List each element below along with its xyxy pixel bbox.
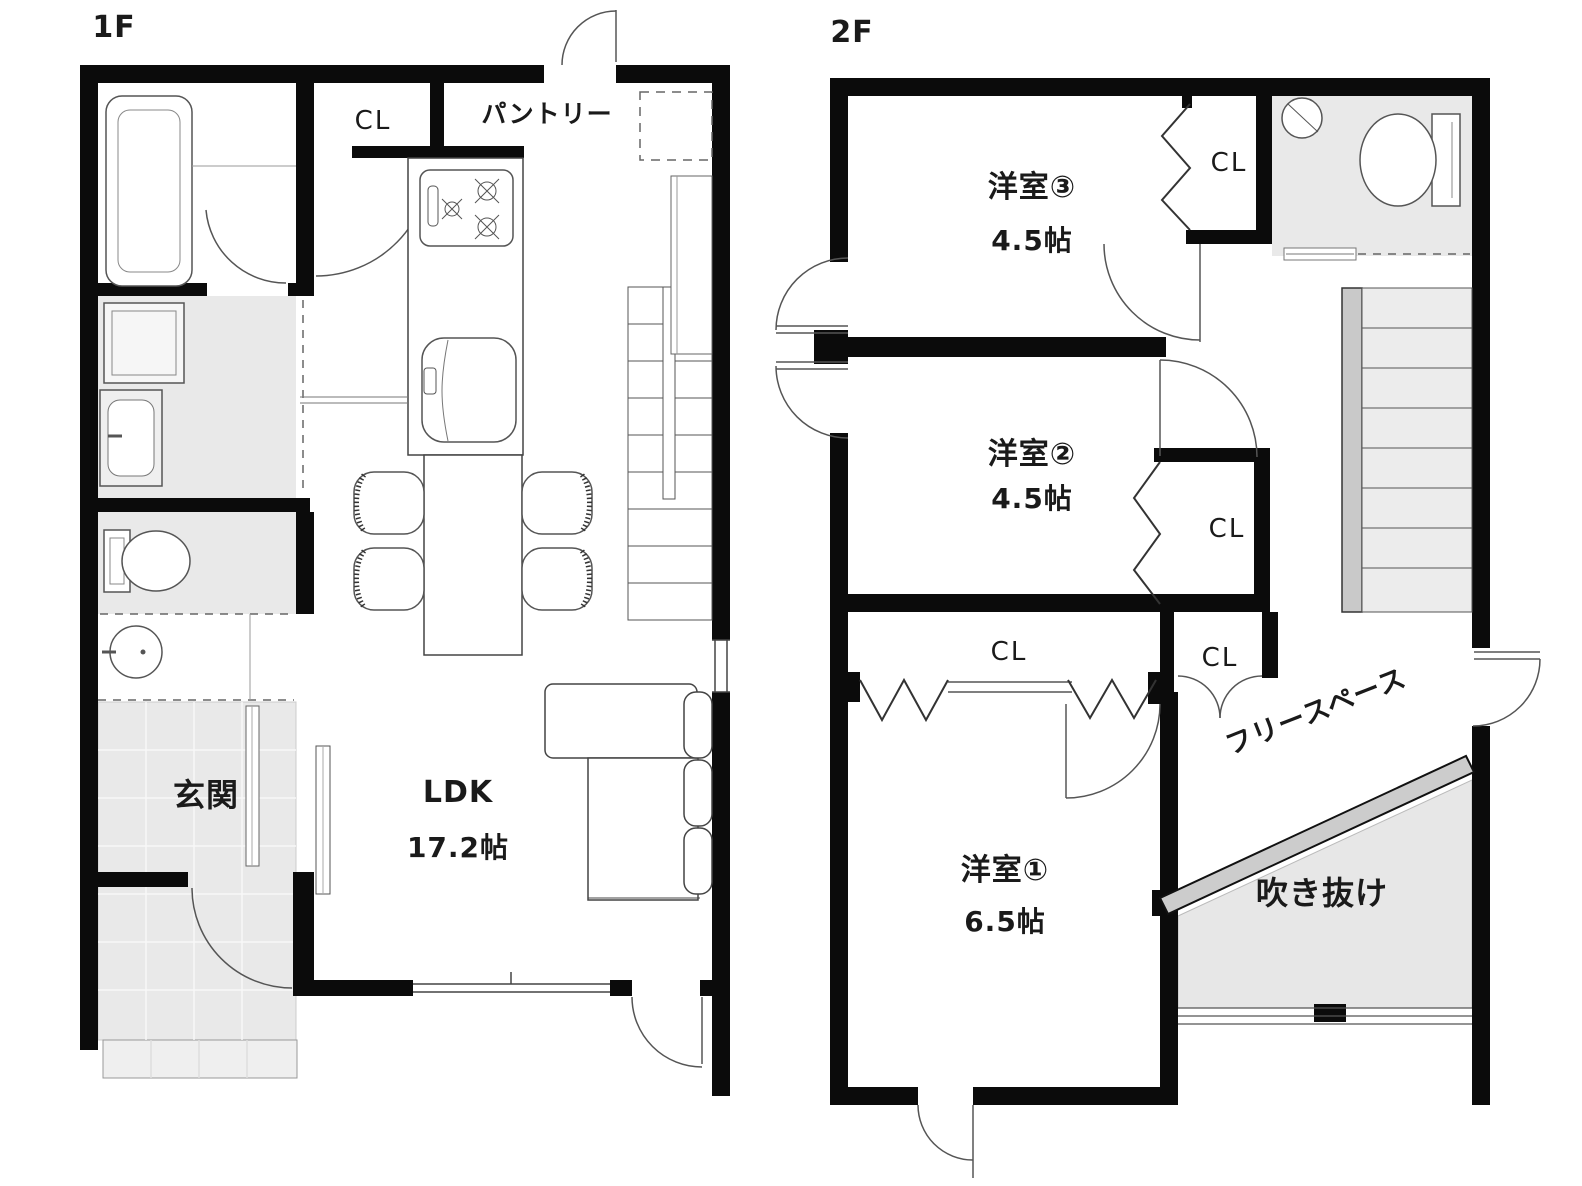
- counter-lines: [300, 397, 408, 403]
- floorplan-drawing: [0, 0, 1582, 1186]
- floor2-plan: [776, 78, 1540, 1178]
- shoe-cabinet: [246, 706, 259, 866]
- chair: [522, 548, 592, 610]
- sofa: [545, 684, 712, 900]
- tv-board: [316, 746, 330, 894]
- dining-table: [424, 455, 522, 655]
- entrance-label: 玄関: [173, 779, 239, 811]
- pantry-shelf: [671, 176, 712, 354]
- chair: [354, 472, 424, 534]
- hall-closet-label: CL: [991, 639, 1028, 665]
- hall-closet2-doors: [1178, 676, 1262, 718]
- chair: [354, 548, 424, 610]
- round-basin: [102, 614, 250, 700]
- floorplan-canvas: 1F CL パントリー 玄関 LDK 17.2帖 2F 洋室③ 4.5帖 CL …: [0, 0, 1582, 1186]
- floor1-plan: [80, 10, 730, 1096]
- room3-label: 洋室③: [988, 173, 1076, 203]
- vanity-sink: [100, 390, 162, 486]
- hall-closet2-label: CL: [1202, 645, 1239, 671]
- room3-closet-folding-door: [1162, 104, 1190, 230]
- refrigerator-space: [640, 92, 712, 160]
- room3-door: [1104, 244, 1200, 342]
- balcony-door-right: [1472, 648, 1540, 726]
- room3-size-label: 4.5帖: [991, 227, 1073, 255]
- pantry-label: パントリー: [481, 102, 612, 127]
- kitchen-stove: [420, 170, 513, 246]
- hall-closet-front: [860, 680, 1156, 720]
- room1-door: [1066, 704, 1160, 798]
- kitchen-sink: [422, 338, 516, 442]
- room1-size-label: 6.5帖: [964, 908, 1046, 936]
- stairs-2f: [1342, 288, 1472, 612]
- room2-label: 洋室②: [988, 440, 1076, 470]
- void-label: 吹き抜け: [1256, 877, 1388, 909]
- room2-size-label: 4.5帖: [991, 485, 1073, 513]
- floor1-closet-label: CL: [355, 108, 392, 134]
- room2-door: [1160, 360, 1257, 457]
- room3-closet-label: CL: [1211, 150, 1248, 176]
- washing-machine: [104, 303, 184, 383]
- room2-closet-folding-door: [1134, 462, 1160, 604]
- terrace-door-arc: [632, 997, 702, 1067]
- ldk-label: LDK: [423, 778, 493, 808]
- kitchen-island: [408, 158, 523, 455]
- ldk-size-label: 17.2帖: [407, 834, 509, 862]
- chair: [522, 472, 592, 534]
- bathroom-door-arc: [206, 210, 286, 283]
- room2-closet-label: CL: [1209, 516, 1246, 542]
- room1-label: 洋室①: [961, 856, 1049, 886]
- toilet-1f: [104, 530, 190, 592]
- pantry-door-arc: [562, 11, 616, 65]
- bathtub: [106, 96, 296, 286]
- floor1-title: 1F: [92, 13, 135, 43]
- room1-exterior-door: [918, 1105, 973, 1178]
- floor2-title: 2F: [830, 18, 873, 48]
